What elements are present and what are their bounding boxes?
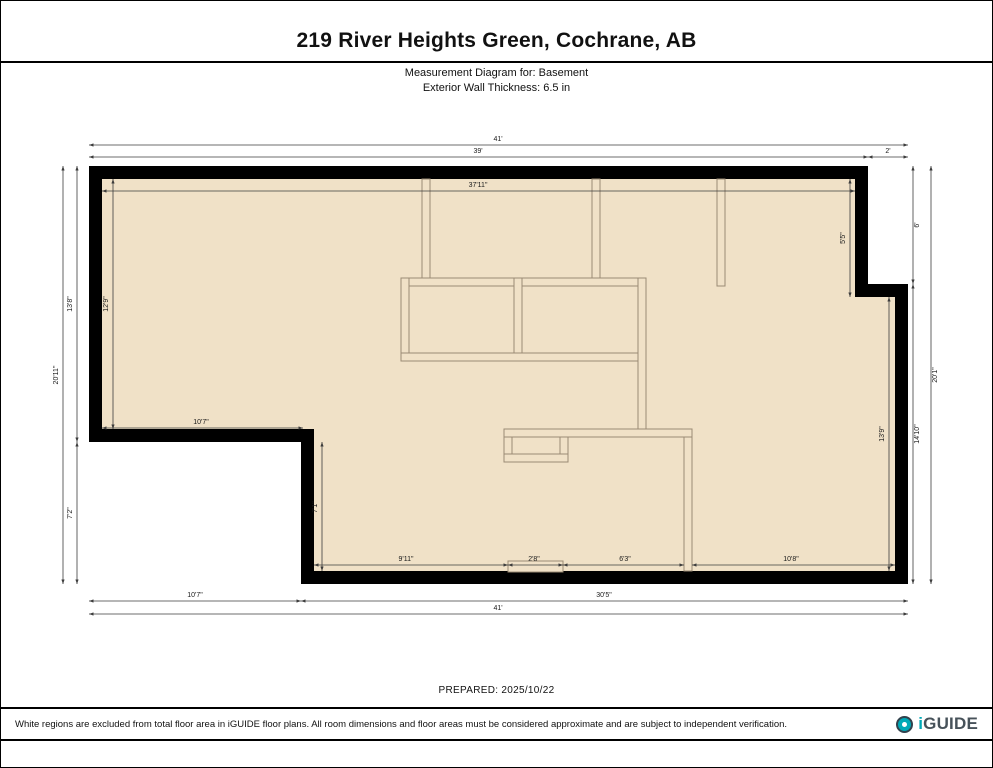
dimension-arrow	[61, 580, 64, 585]
dimension-label: 2'8"	[528, 556, 540, 563]
interior-wall	[504, 429, 692, 437]
dimension-label: 10'8"	[783, 556, 799, 563]
iguide-logo: iGUIDE	[896, 714, 978, 734]
interior-wall	[401, 353, 646, 361]
dimension-arrow	[89, 612, 94, 615]
dimension-arrow	[911, 166, 914, 171]
dimension-label: 6'	[914, 222, 921, 227]
dimension-label: 6'3"	[619, 556, 631, 563]
footer-bar: White regions are excluded from total fl…	[1, 707, 992, 741]
dimension-label: 39'	[473, 148, 482, 155]
dimension-arrow	[911, 284, 914, 289]
dimension-label: 14'10"	[914, 424, 921, 444]
dimension-label: 10'7"	[187, 592, 203, 599]
dimension-arrow	[929, 166, 932, 171]
dimension-arrow	[904, 155, 909, 158]
disclaimer-text: White regions are excluded from total fl…	[15, 719, 787, 730]
dimension-arrow	[929, 580, 932, 585]
iguide-wordmark: iGUIDE	[918, 714, 978, 734]
dimension-arrow	[904, 143, 909, 146]
dimension-label: 12'9"	[103, 296, 110, 312]
dimension-label: 5'5"	[840, 232, 847, 244]
dimension-label: 20'1"	[932, 367, 939, 383]
dimension-arrow	[75, 166, 78, 171]
dimension-label: 13'9"	[879, 426, 886, 442]
page: 219 River Heights Green, Cochrane, AB Me…	[0, 0, 993, 768]
interior-wall	[717, 179, 725, 286]
floorplan-svg: 41'39'2'37'11"10'7"9'11"2'8"6'3"10'8"10'…	[1, 1, 993, 768]
dimension-arrow	[61, 166, 64, 171]
dimension-arrow	[904, 612, 909, 615]
dimension-arrow	[89, 143, 94, 146]
interior-wall	[401, 278, 409, 361]
dimension-label: 2'	[885, 148, 890, 155]
dimension-arrow	[75, 580, 78, 585]
dimension-arrow	[904, 599, 909, 602]
dimension-arrow	[89, 599, 94, 602]
floor-area	[102, 179, 895, 571]
dimension-label: 13'8"	[67, 296, 74, 312]
interior-wall	[514, 278, 522, 361]
dimension-label: 9'11"	[399, 556, 414, 563]
dimension-arrow	[75, 438, 78, 443]
interior-wall	[638, 278, 646, 434]
prepared-date: PREPARED: 2025/10/22	[1, 685, 992, 696]
dimension-arrow	[911, 280, 914, 285]
dimension-label: 37'11"	[469, 182, 488, 189]
dimension-label: 41'	[493, 136, 502, 143]
dimension-label: 7'1"	[312, 501, 319, 513]
dimension-label: 20'11"	[53, 365, 60, 384]
interior-wall	[684, 437, 692, 571]
interior-wall	[504, 454, 568, 462]
interior-wall	[422, 179, 430, 280]
dimension-label: 41'	[493, 605, 502, 612]
dimension-label: 10'7"	[193, 419, 209, 426]
dimension-arrow	[301, 599, 306, 602]
dimension-label: 30'5"	[596, 592, 612, 599]
dimension-arrow	[297, 599, 302, 602]
dimension-arrow	[864, 155, 869, 158]
dimension-label: 7'2"	[67, 507, 74, 519]
iguide-logo-icon	[896, 716, 913, 733]
interior-wall	[592, 179, 600, 280]
interior-wall	[401, 278, 646, 286]
dimension-arrow	[75, 442, 78, 447]
dimension-arrow	[89, 155, 94, 158]
dimension-arrow	[911, 580, 914, 585]
dimension-arrow	[868, 155, 873, 158]
